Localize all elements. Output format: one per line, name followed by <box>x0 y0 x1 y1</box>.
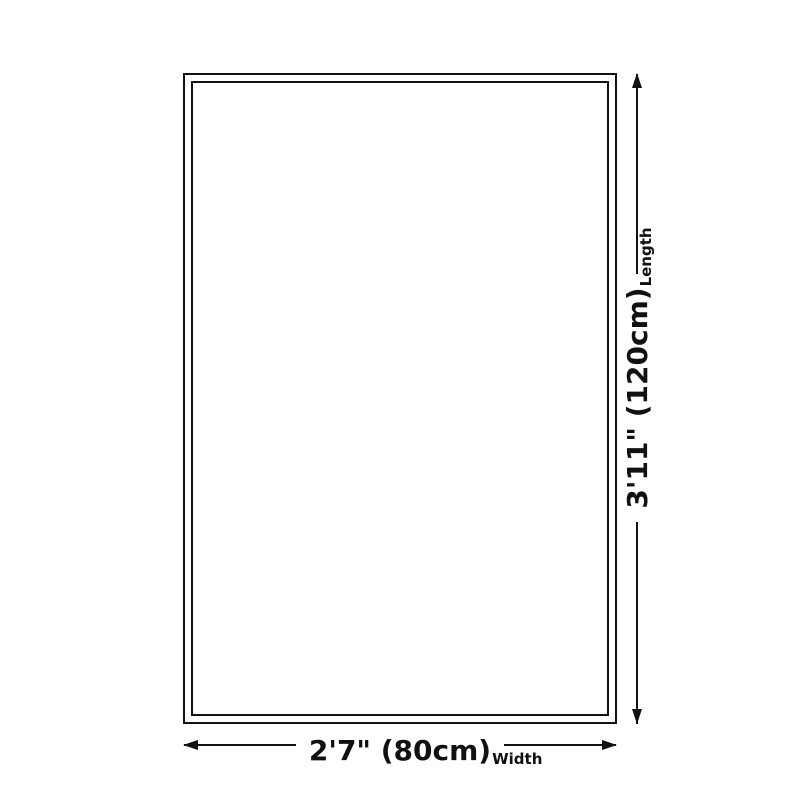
rug-inner-border <box>191 81 609 716</box>
width-value: 2'7" (80cm) <box>309 734 491 767</box>
arrow-right-icon <box>602 740 617 750</box>
length-value-box: 3'11" (120cm) Length <box>619 274 657 521</box>
arrow-left-icon <box>183 740 198 750</box>
width-dimension-label: 2'7" (80cm) Width <box>260 731 540 771</box>
arrow-up-icon <box>632 73 642 88</box>
length-value: 3'11" (120cm) <box>621 287 654 508</box>
rug-size-diagram: 3'11" (120cm) Length 2'7" (80cm) Width <box>0 0 800 800</box>
width-axis-label: Width <box>492 752 542 767</box>
width-value-box: 2'7" (80cm) Width <box>296 732 504 770</box>
arrow-down-icon <box>632 709 642 724</box>
length-dimension-label: 3'11" (120cm) Length <box>618 258 658 538</box>
rug-outline <box>183 73 617 724</box>
length-axis-label: Length <box>639 227 654 286</box>
